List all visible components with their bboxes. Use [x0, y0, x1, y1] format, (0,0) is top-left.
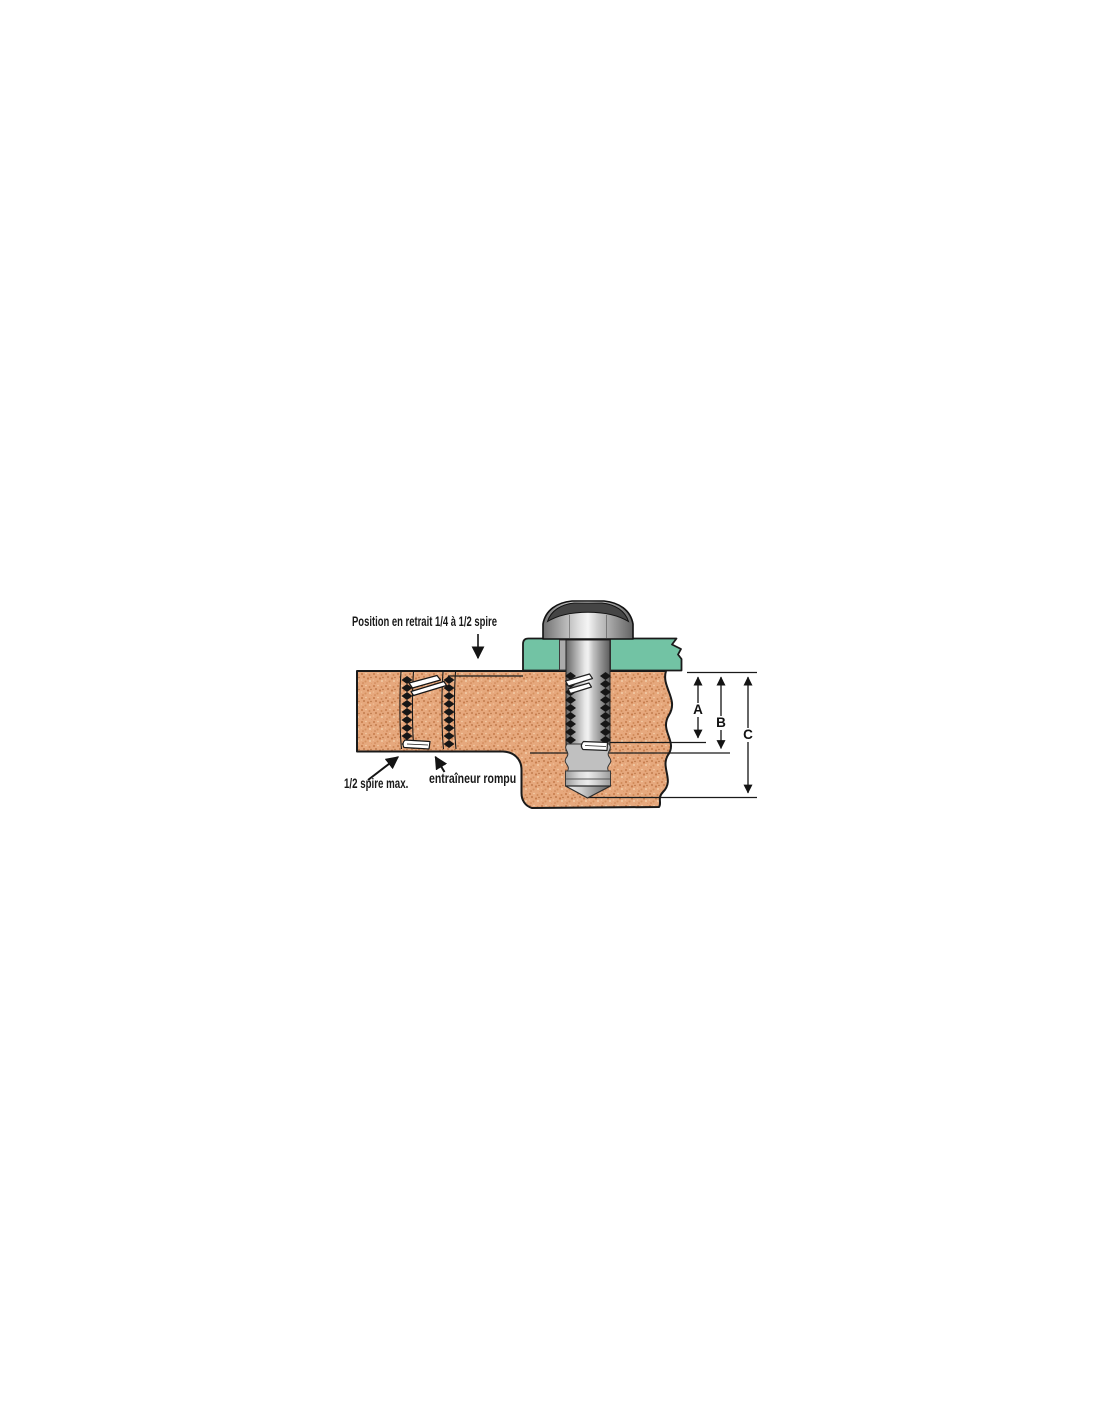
diagram-svg	[0, 0, 1100, 1422]
label-broken-tang: entraîneur rompu	[429, 772, 516, 786]
label-recess-position: Position en retrait 1/4 à 1/2 spire	[352, 615, 497, 629]
dimension-label-c: C	[741, 728, 755, 742]
dimension-label-a: A	[691, 703, 705, 717]
bolt-bottom-tang	[581, 742, 607, 751]
dimension-label-b: B	[714, 716, 728, 730]
broken-tang-arrow	[436, 757, 445, 772]
figure-canvas: Position en retrait 1/4 à 1/2 spire 1/2 …	[0, 0, 1100, 1422]
label-half-coil-max: 1/2 spire max.	[344, 777, 408, 791]
insert-bottom-tang	[403, 740, 430, 749]
bolt-coil-column-right	[600, 672, 611, 744]
